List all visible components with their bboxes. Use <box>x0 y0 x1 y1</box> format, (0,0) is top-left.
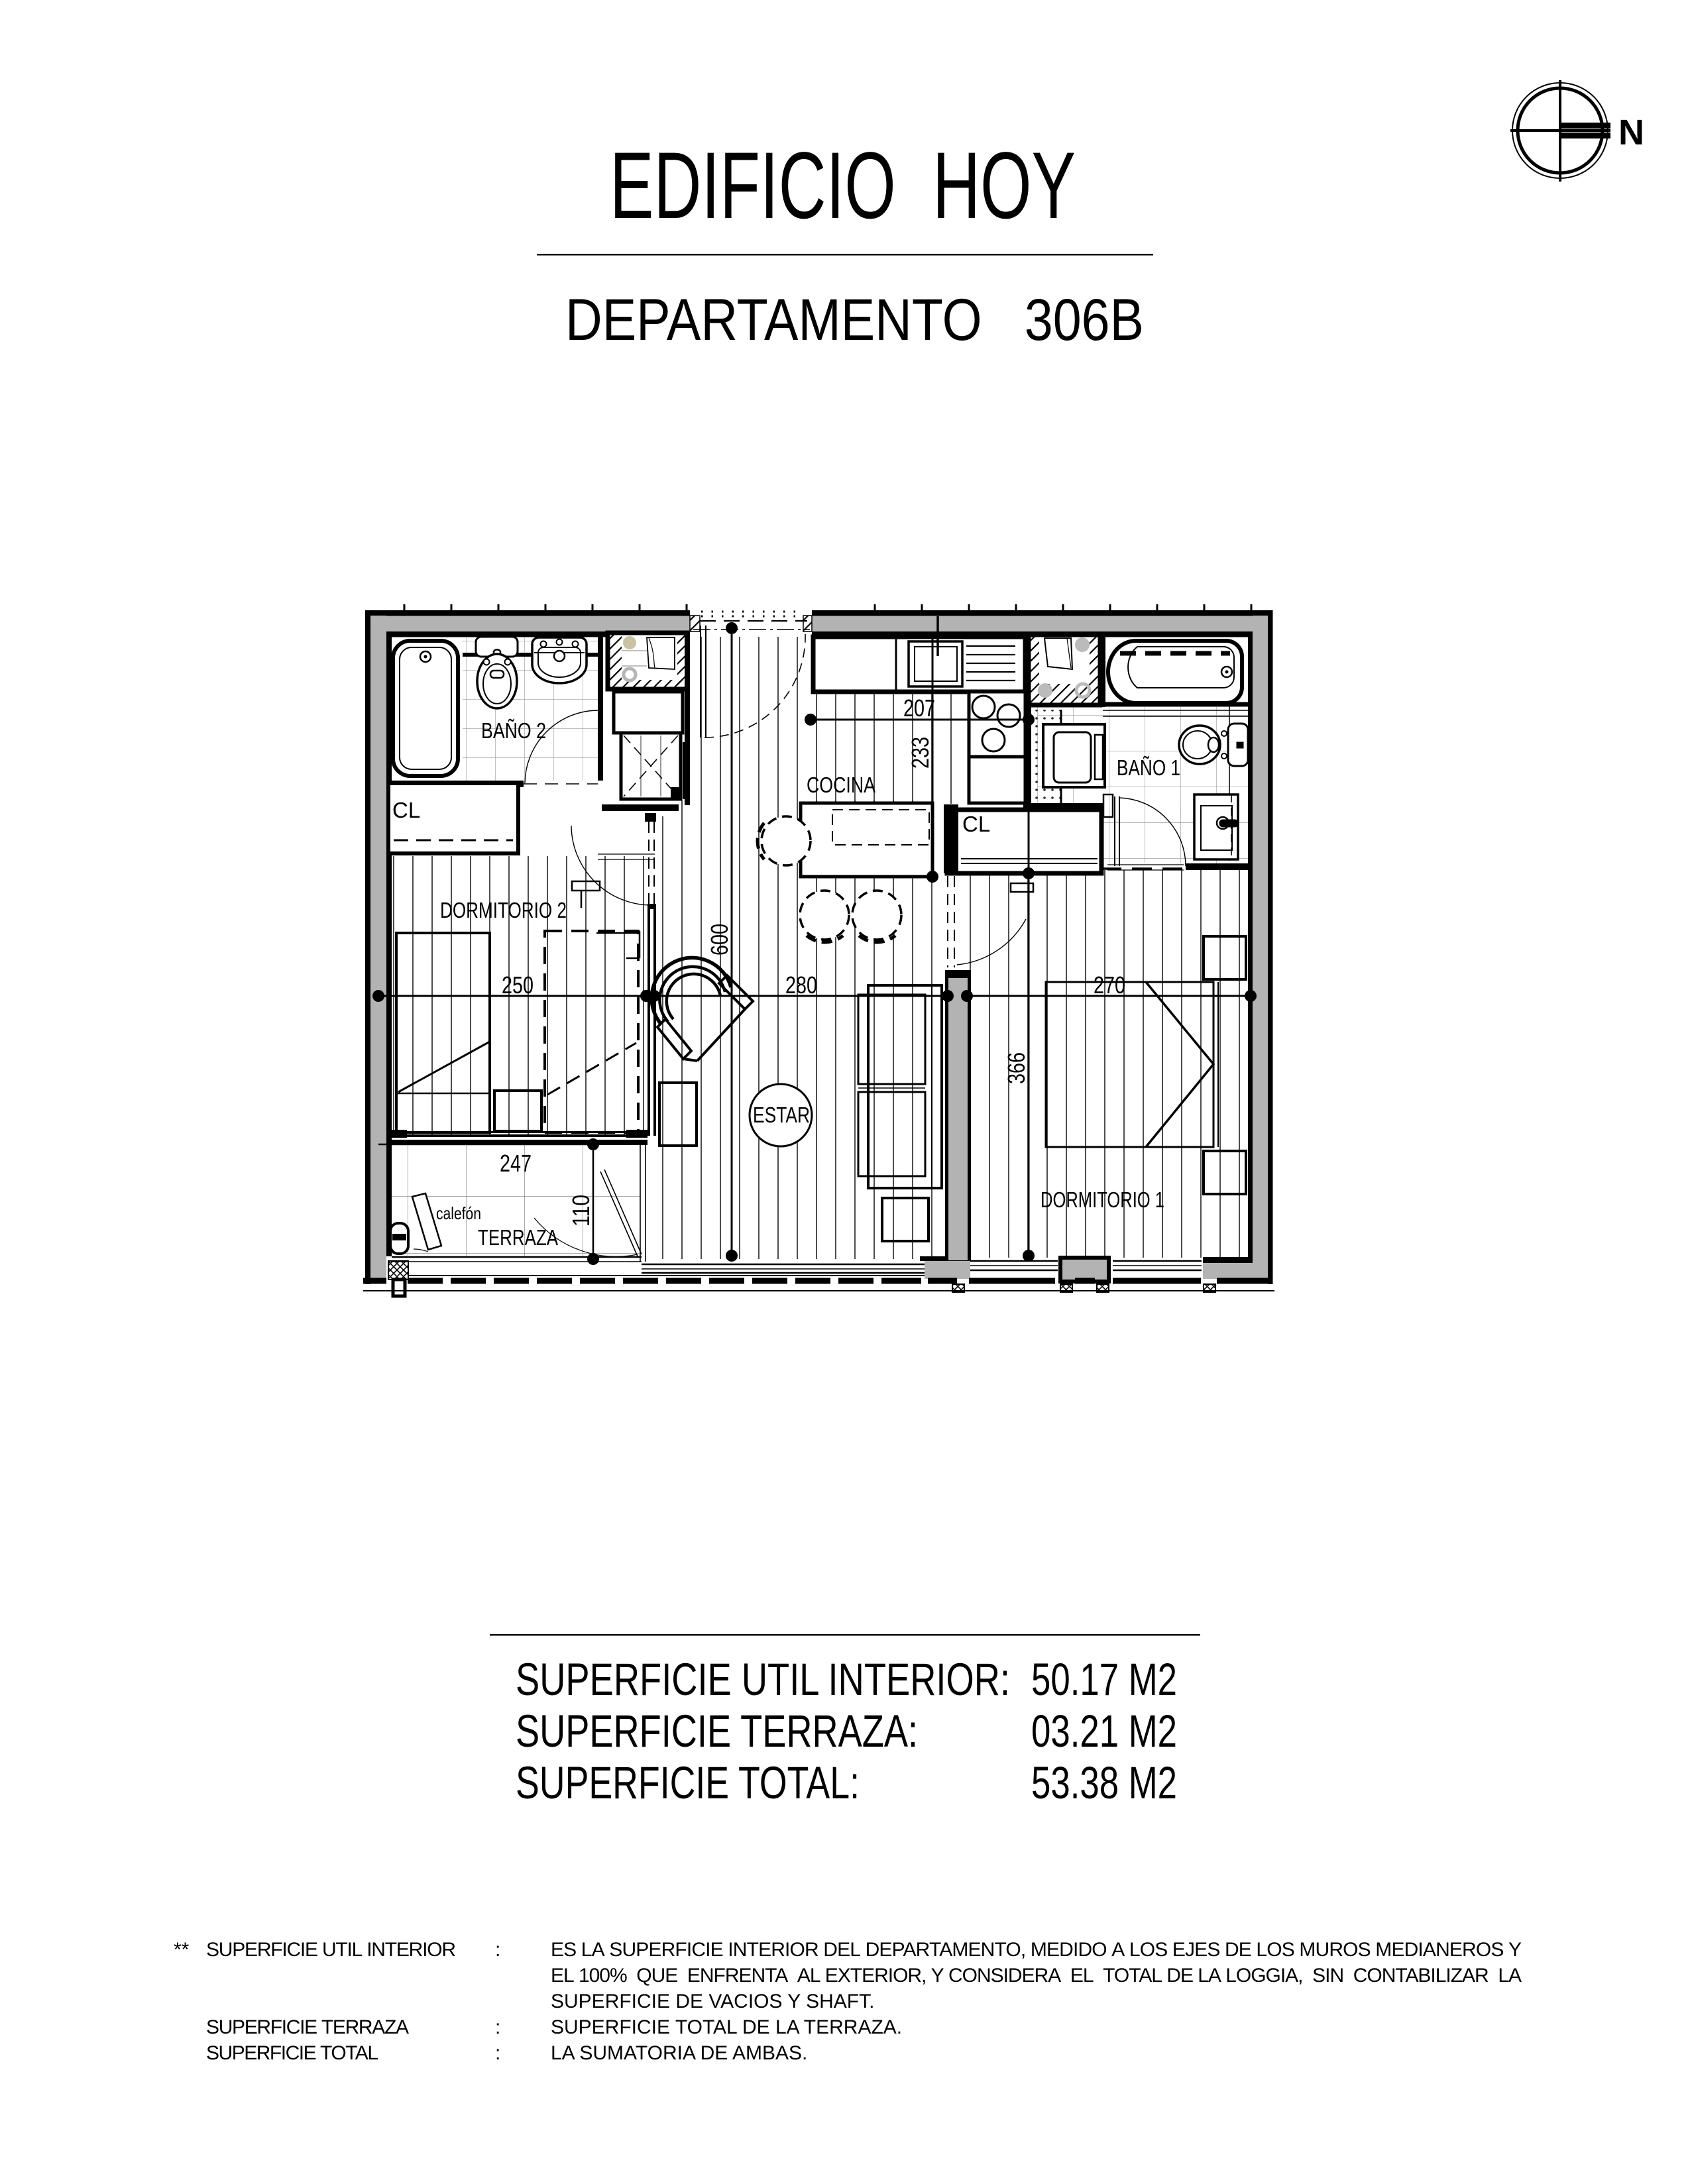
svg-text:DORMITORIO 2: DORMITORIO 2 <box>440 898 567 922</box>
svg-text:SUPERFICIE TERRAZA:: SUPERFICIE TERRAZA: <box>516 1706 918 1757</box>
svg-text::: : <box>495 2016 500 2038</box>
svg-text:**: ** <box>174 1939 190 1961</box>
svg-text:366: 366 <box>1003 1052 1030 1084</box>
svg-text:BAÑO 2: BAÑO 2 <box>481 718 546 743</box>
svg-text:COCINA: COCINA <box>807 773 875 797</box>
svg-text::: : <box>495 1939 500 1961</box>
svg-text:250: 250 <box>502 971 534 999</box>
svg-text:DEPARTAMENTO 306B: DEPARTAMENTO 306B <box>565 286 1144 353</box>
svg-text:600: 600 <box>706 924 733 955</box>
svg-text:280: 280 <box>785 971 817 999</box>
svg-text::: : <box>495 2042 500 2064</box>
svg-text:SUPERFICIE TOTAL:: SUPERFICIE TOTAL: <box>516 1757 860 1808</box>
svg-text:ESTAR: ESTAR <box>753 1103 810 1127</box>
svg-text:50.17 M2: 50.17 M2 <box>1031 1654 1177 1705</box>
svg-text:SUPERFICIE DE VACIOS Y SHAFT.: SUPERFICIE DE VACIOS Y SHAFT. <box>551 1991 874 2012</box>
svg-text:53.38 M2: 53.38 M2 <box>1031 1757 1177 1808</box>
svg-text:110: 110 <box>567 1195 594 1227</box>
svg-text:03.21 M2: 03.21 M2 <box>1031 1706 1177 1757</box>
svg-text:BAÑO 1: BAÑO 1 <box>1117 755 1180 780</box>
svg-text:TERRAZA: TERRAZA <box>478 1225 558 1250</box>
svg-text:270: 270 <box>1094 971 1125 999</box>
svg-text:SUPERFICIE UTIL INTERIOR:: SUPERFICIE UTIL INTERIOR: <box>516 1654 1010 1705</box>
svg-text:ES LA SUPERFICIE INTERIOR DEL: ES LA SUPERFICIE INTERIOR DEL DEPARTAMEN… <box>551 1939 1522 1961</box>
svg-text:247: 247 <box>500 1150 532 1177</box>
svg-text:CL: CL <box>392 798 420 822</box>
svg-text:LA SUMATORIA DE AMBAS.: LA SUMATORIA DE AMBAS. <box>551 2042 807 2064</box>
svg-text:SUPERFICIE TOTAL: SUPERFICIE TOTAL <box>206 2042 378 2064</box>
svg-text:SUPERFICIE UTIL INTERIOR: SUPERFICIE UTIL INTERIOR <box>206 1939 456 1961</box>
svg-text:CL: CL <box>962 812 990 836</box>
svg-text:207: 207 <box>903 694 935 722</box>
svg-text:EDIFICIO HOY: EDIFICIO HOY <box>610 133 1076 239</box>
svg-text:SUPERFICIE TERRAZA: SUPERFICIE TERRAZA <box>206 2016 409 2038</box>
svg-text:DORMITORIO 1: DORMITORIO 1 <box>1041 1187 1164 1212</box>
svg-text:calefón: calefón <box>436 1203 481 1223</box>
svg-text:SUPERFICIE TOTAL DE LA TERRAZA: SUPERFICIE TOTAL DE LA TERRAZA. <box>551 2016 902 2038</box>
svg-text:233: 233 <box>907 737 934 769</box>
svg-text:N: N <box>1618 113 1644 152</box>
svg-text:EL 100% QUE ENFRENTA AL EXT: EL 100% QUE ENFRENTA AL EXTERIOR, Y CONS… <box>551 1965 1522 1987</box>
